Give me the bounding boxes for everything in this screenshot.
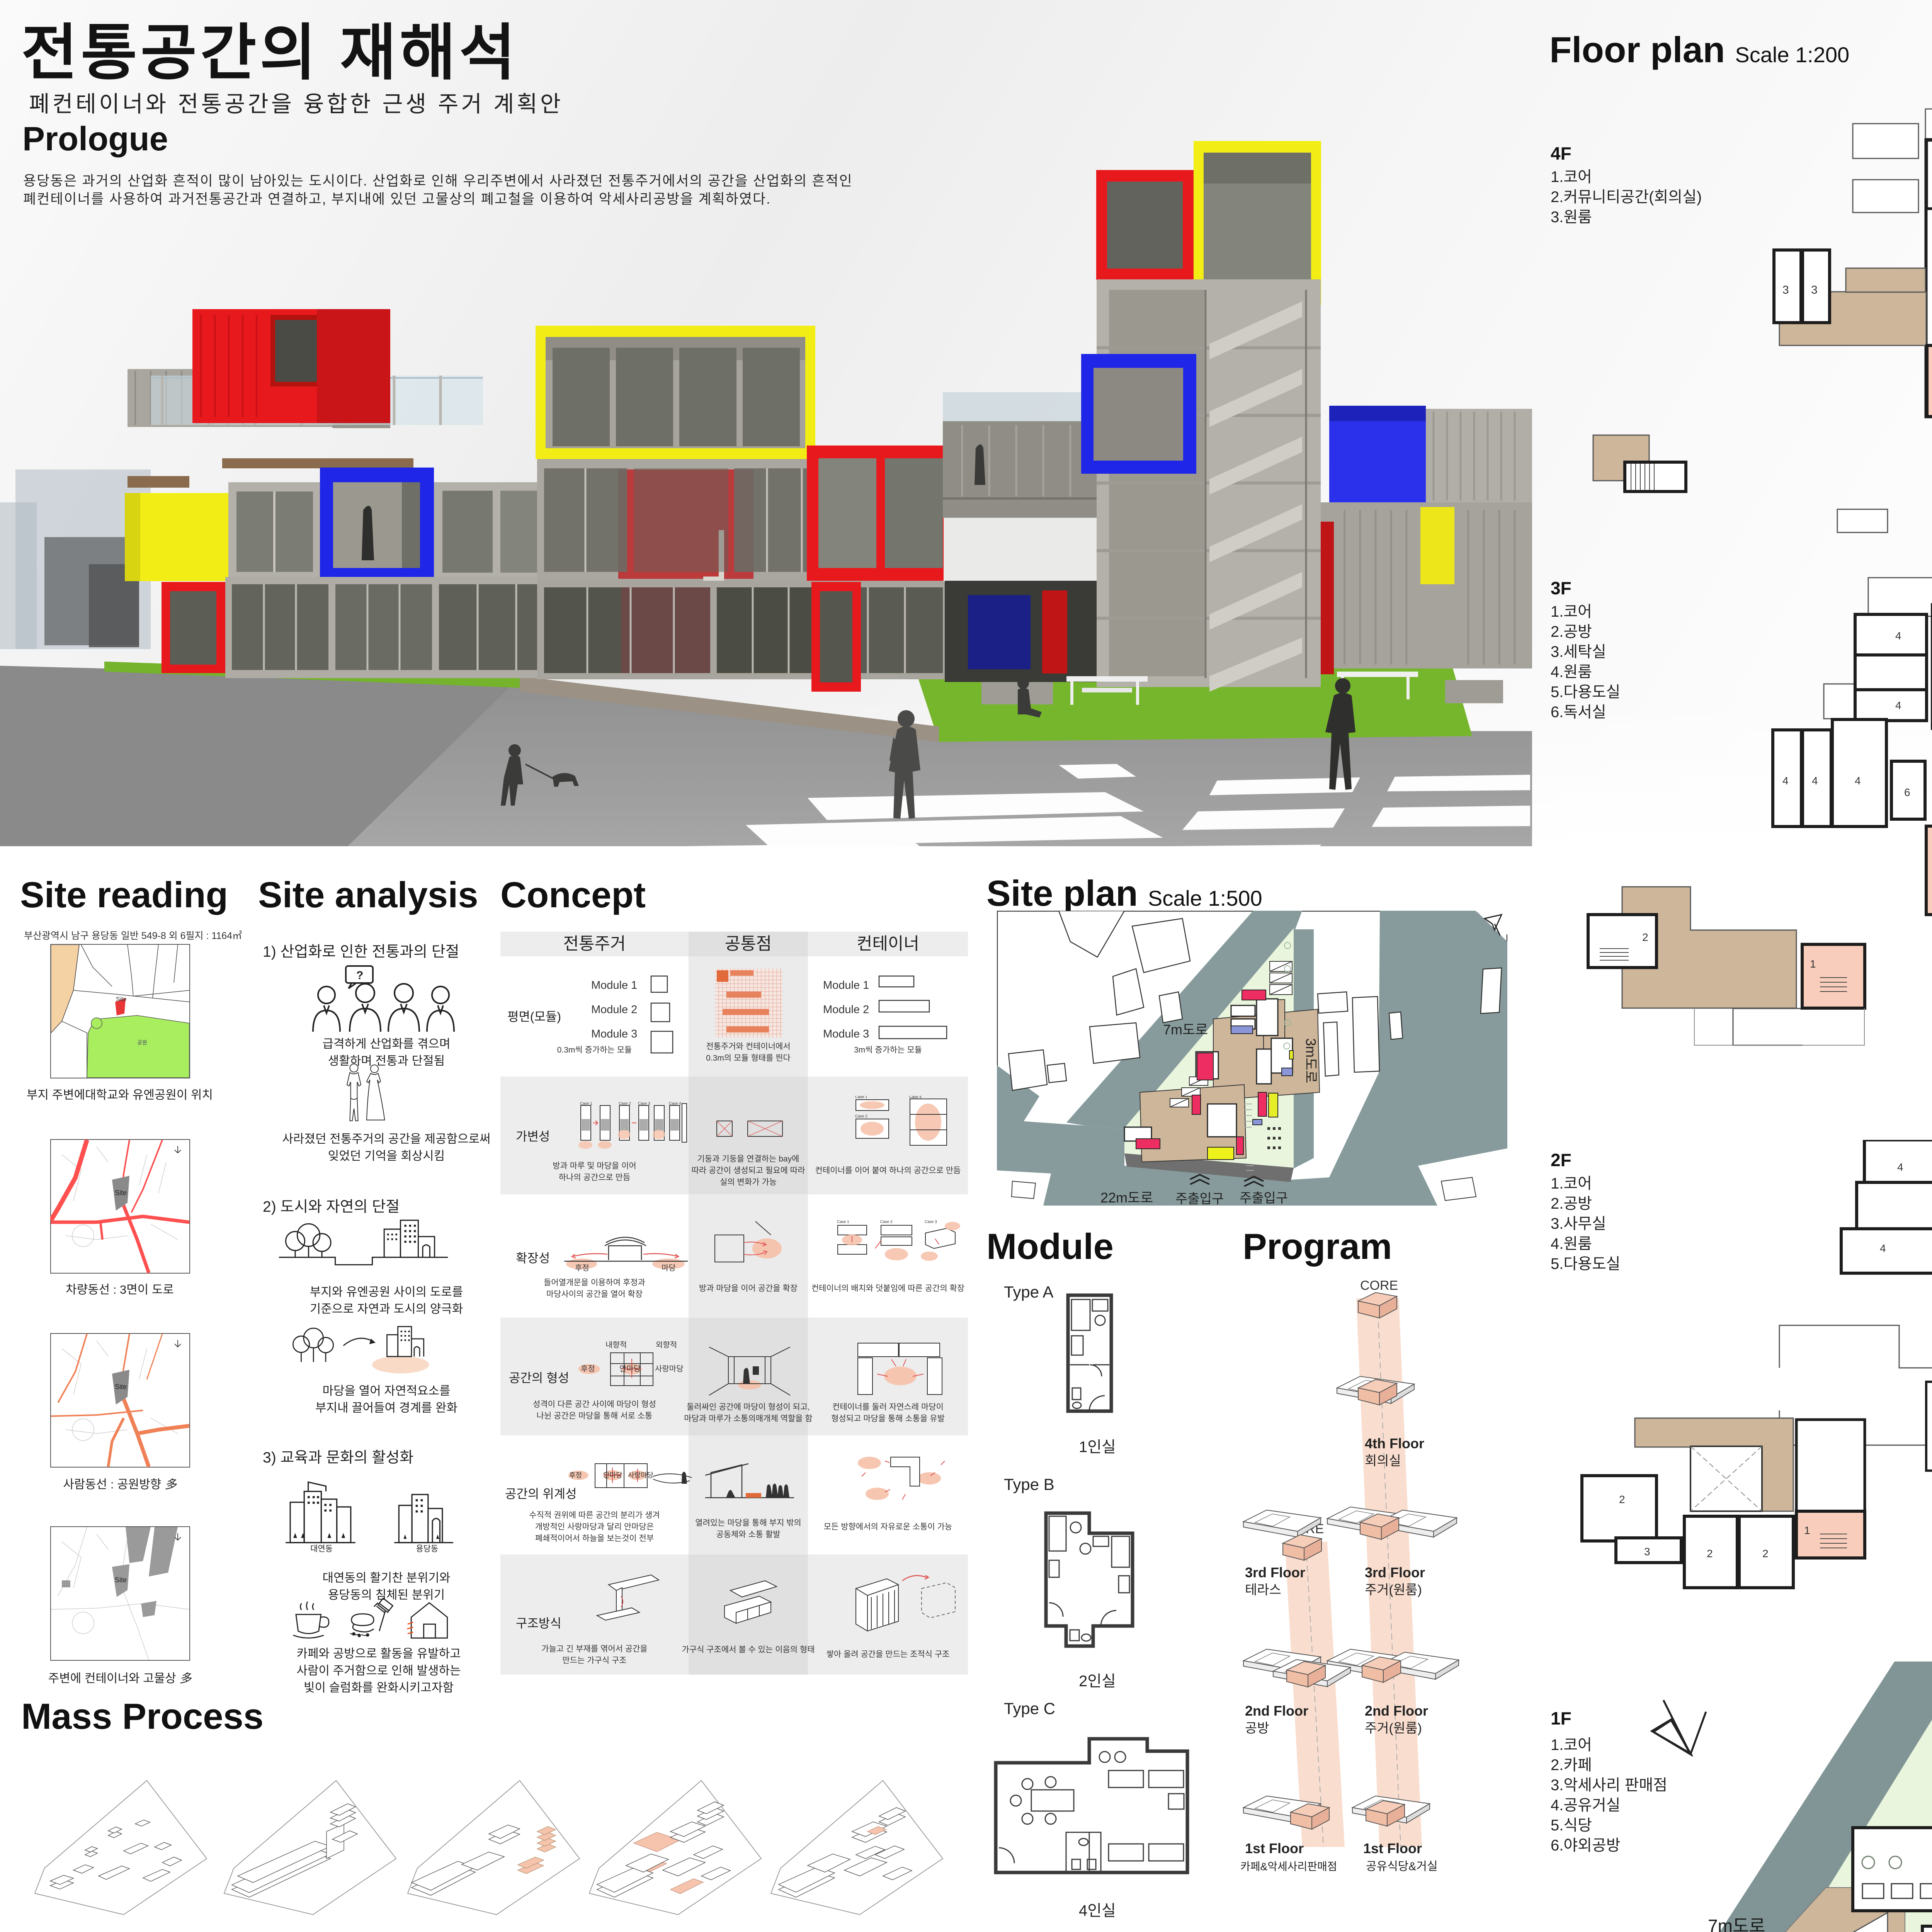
svg-text:공방: 공방 bbox=[1245, 1721, 1269, 1736]
svg-text:2: 2 bbox=[1642, 931, 1648, 943]
svg-text:2nd Floor: 2nd Floor bbox=[1365, 1703, 1428, 1719]
svg-text:Site: Site bbox=[115, 1576, 127, 1584]
svg-text:내향적: 내향적 bbox=[605, 1341, 627, 1349]
svg-text:1: 1 bbox=[1804, 1524, 1810, 1536]
svg-text:4: 4 bbox=[1897, 1161, 1903, 1173]
svg-text:대연동: 대연동 bbox=[310, 1544, 333, 1553]
svg-text:6: 6 bbox=[1904, 786, 1910, 798]
svg-text:Case 2: Case 2 bbox=[880, 1220, 893, 1224]
svg-text:?: ? bbox=[356, 969, 363, 982]
svg-text:2: 2 bbox=[1762, 1548, 1769, 1560]
svg-text:주거(원룸): 주거(원룸) bbox=[1365, 1721, 1422, 1736]
svg-text:Case 1: Case 1 bbox=[580, 1102, 592, 1106]
svg-text:2: 2 bbox=[1707, 1548, 1713, 1560]
svg-text:4: 4 bbox=[1855, 775, 1861, 787]
svg-text:외향적: 외향적 bbox=[656, 1341, 677, 1349]
svg-text:Site: Site bbox=[115, 1189, 127, 1197]
svg-text:후정: 후정 bbox=[581, 1364, 595, 1373]
svg-text:3: 3 bbox=[1811, 284, 1818, 296]
svg-text:22m도로: 22m도로 bbox=[1100, 1190, 1153, 1206]
svg-text:4: 4 bbox=[1812, 775, 1818, 787]
svg-text:카페&악세사리판매점: 카페&악세사리판매점 bbox=[1240, 1861, 1337, 1872]
svg-text:4: 4 bbox=[1895, 699, 1901, 711]
svg-text:후정: 후정 bbox=[569, 1471, 582, 1479]
svg-text:Case 3: Case 3 bbox=[925, 1220, 937, 1224]
svg-text:회의실: 회의실 bbox=[1365, 1454, 1401, 1468]
svg-text:1: 1 bbox=[1810, 958, 1816, 970]
svg-text:7m도로: 7m도로 bbox=[1708, 1916, 1765, 1932]
svg-text:4: 4 bbox=[1895, 630, 1901, 642]
svg-text:2nd Floor: 2nd Floor bbox=[1245, 1703, 1308, 1719]
svg-text:3: 3 bbox=[1782, 284, 1789, 296]
svg-text:후정: 후정 bbox=[575, 1264, 589, 1272]
svg-text:1st Floor: 1st Floor bbox=[1363, 1840, 1422, 1856]
svg-text:2: 2 bbox=[1619, 1493, 1625, 1505]
svg-text:3rd Floor: 3rd Floor bbox=[1245, 1565, 1305, 1580]
svg-text:용당동: 용당동 bbox=[416, 1544, 439, 1553]
svg-text:Case 4: Case 4 bbox=[669, 1102, 681, 1106]
svg-text:마당: 마당 bbox=[662, 1264, 676, 1272]
svg-text:3rd Floor: 3rd Floor bbox=[1365, 1565, 1425, 1580]
svg-text:Case 3: Case 3 bbox=[638, 1102, 650, 1106]
svg-text:Case 2: Case 2 bbox=[619, 1102, 631, 1106]
svg-text:7m도로: 7m도로 bbox=[1163, 1022, 1208, 1037]
svg-text:Case 4: Case 4 bbox=[909, 1096, 922, 1099]
svg-text:4th Floor: 4th Floor bbox=[1365, 1435, 1424, 1451]
svg-text:3m도로: 3m도로 bbox=[1303, 1038, 1319, 1083]
svg-text:CORE: CORE bbox=[1360, 1278, 1398, 1293]
svg-text:Case 1: Case 1 bbox=[837, 1220, 849, 1224]
svg-text:Site: Site bbox=[115, 1383, 127, 1391]
svg-text:4: 4 bbox=[1880, 1242, 1886, 1254]
svg-text:안마당: 안마당 bbox=[603, 1471, 622, 1479]
svg-text:테라스: 테라스 bbox=[1245, 1583, 1281, 1597]
svg-text:주출입구: 주출입구 bbox=[1240, 1191, 1288, 1206]
svg-text:1st Floor: 1st Floor bbox=[1245, 1840, 1304, 1856]
svg-text:Case 1: Case 1 bbox=[855, 1096, 867, 1099]
svg-text:공원: 공원 bbox=[137, 1039, 147, 1046]
svg-text:Site: Site bbox=[116, 996, 127, 1003]
svg-text:Case 2: Case 2 bbox=[855, 1114, 867, 1119]
svg-text:4: 4 bbox=[1782, 775, 1789, 787]
svg-text:3: 3 bbox=[1644, 1546, 1650, 1558]
svg-text:주출입구: 주출입구 bbox=[1175, 1192, 1224, 1206]
svg-text:주거(원룸): 주거(원룸) bbox=[1365, 1583, 1422, 1597]
svg-text:사랑마당: 사랑마당 bbox=[655, 1364, 684, 1373]
svg-text:사랑마당: 사랑마당 bbox=[628, 1471, 653, 1479]
svg-text:안마당: 안마당 bbox=[619, 1364, 641, 1373]
svg-text:공유식당&거실: 공유식당&거실 bbox=[1366, 1860, 1438, 1873]
